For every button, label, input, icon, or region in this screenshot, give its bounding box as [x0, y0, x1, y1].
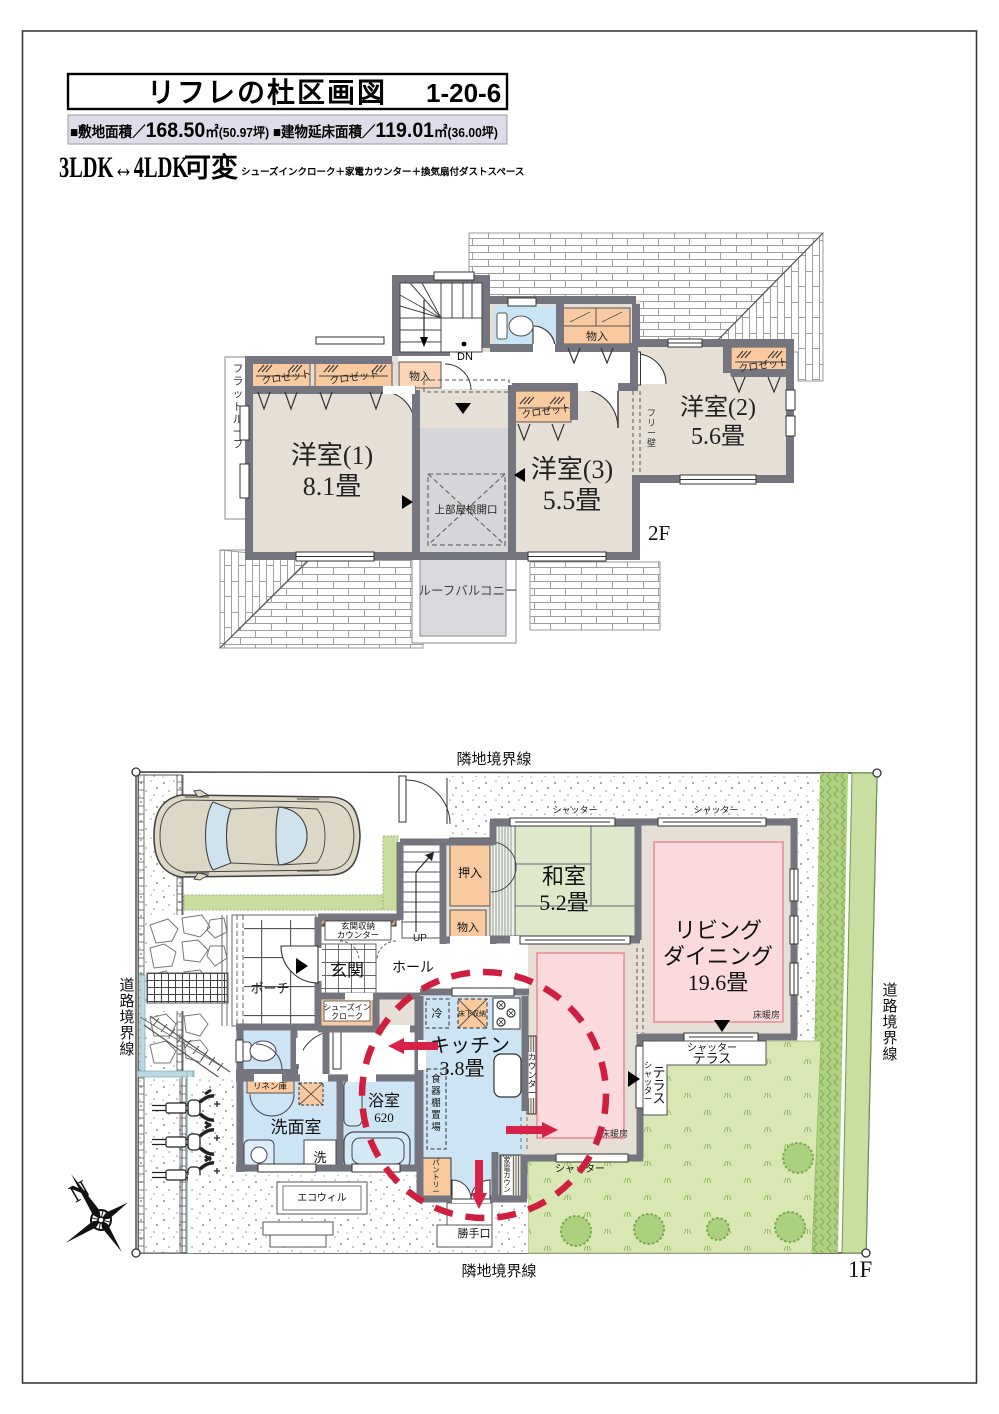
svg-text:5.5畳: 5.5畳 [543, 486, 602, 515]
svg-text:カウンター: カウンター [528, 1052, 537, 1098]
svg-text:ポーチ: ポーチ [250, 981, 289, 996]
svg-text:床暖房: 床暖房 [753, 1009, 780, 1020]
svg-text:リネン庫: リネン庫 [253, 1081, 288, 1091]
svg-text:隣地境界線: 隣地境界線 [461, 1262, 536, 1280]
svg-text:隣地境界線: 隣地境界線 [456, 750, 531, 768]
svg-text:可変: 可変 [184, 152, 238, 183]
svg-text:5.2畳: 5.2畳 [539, 890, 589, 915]
svg-text:リフレの杜区画図: リフレの杜区画図 [147, 77, 387, 108]
svg-text:ルーフバルコニー: ルーフバルコニー [418, 584, 517, 598]
svg-text:1F: 1F [848, 1257, 872, 1282]
svg-text:ダイニング: ダイニング [663, 944, 773, 969]
svg-text:フリー壁: フリー壁 [647, 408, 656, 448]
svg-text:■敷地面積／168.50㎡(50.97坪) ■建物延床面積／: ■敷地面積／168.50㎡(50.97坪) ■建物延床面積／119.01㎡(36… [70, 119, 498, 142]
svg-text:1-20-6: 1-20-6 [426, 78, 501, 108]
svg-text:シャッター: シャッター [552, 805, 597, 815]
svg-text:和室: 和室 [542, 864, 586, 889]
svg-text:2F: 2F [648, 521, 670, 545]
svg-text:3LDK↔4LDK: 3LDK↔4LDK [59, 150, 188, 184]
svg-text:洋室(1): 洋室(1) [291, 441, 373, 470]
svg-text:勝手口: 勝手口 [458, 1226, 491, 1240]
svg-text:シューズイン: シューズイン [323, 1002, 371, 1012]
svg-text:玄関: 玄関 [330, 961, 364, 980]
svg-text:洗面室: 洗面室 [271, 1118, 322, 1137]
svg-text:シューズインクローク＋家電カウンター＋換気扇付ダストスペース: シューズインクローク＋家電カウンター＋換気扇付ダストスペース [241, 166, 524, 178]
svg-text:パントリー: パントリー [432, 1158, 439, 1196]
svg-text:19.6畳: 19.6畳 [688, 970, 749, 995]
svg-text:クローク: クローク [331, 1012, 363, 1021]
svg-text:冷: 冷 [432, 1007, 443, 1020]
svg-text:8.1畳: 8.1畳 [303, 472, 362, 501]
svg-text:洋室(3): 洋室(3) [531, 455, 613, 484]
svg-text:床下収納: 床下収納 [458, 1009, 486, 1018]
svg-text:DN: DN [457, 351, 473, 363]
svg-text:UP: UP [413, 933, 427, 944]
svg-text:シャッター: シャッター [644, 1060, 653, 1104]
svg-text:道路境界線: 道路境界線 [882, 982, 897, 1063]
svg-text:620: 620 [374, 1110, 394, 1125]
svg-text:ホール: ホール [392, 961, 434, 976]
svg-text:食器棚置場: 食器棚置場 [431, 1073, 441, 1133]
svg-text:道路境界線: 道路境界線 [119, 977, 134, 1058]
svg-text:上部屋根開口: 上部屋根開口 [435, 503, 498, 516]
svg-text:カウンター: カウンター [337, 930, 380, 940]
svg-text:リビング: リビング [674, 918, 762, 943]
svg-text:洗: 洗 [313, 1150, 326, 1165]
svg-text:テラス: テラス [652, 1065, 665, 1106]
svg-text:床暖房: 床暖房 [601, 1128, 628, 1139]
svg-text:家電カウン: 家電カウン [503, 1156, 510, 1194]
svg-text:エコウィル: エコウィル [297, 1192, 347, 1204]
svg-text:物入: 物入 [409, 369, 431, 383]
svg-text:浴室: 浴室 [368, 1092, 400, 1110]
svg-text:テラス: テラス [693, 1051, 732, 1066]
svg-text:洋室(2): 洋室(2) [680, 394, 756, 421]
svg-text:キッチン: キッチン [430, 1035, 510, 1057]
svg-text:押入: 押入 [458, 866, 482, 880]
svg-text:物入: 物入 [586, 329, 608, 343]
svg-text:シャッター: シャッター [693, 805, 738, 815]
svg-text:物入: 物入 [457, 920, 479, 934]
svg-text:5.6畳: 5.6畳 [691, 424, 745, 450]
